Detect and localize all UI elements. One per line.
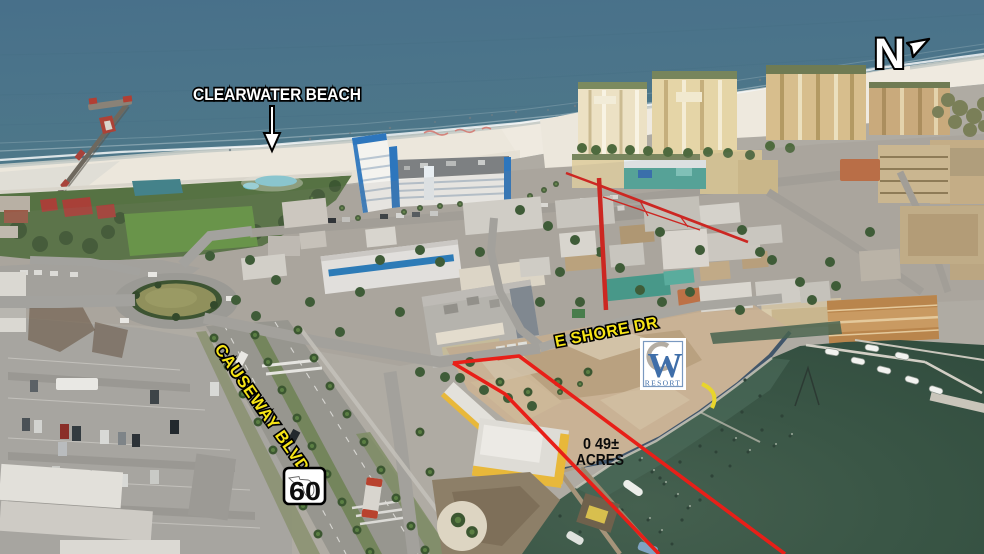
svg-text:N: N: [874, 30, 905, 78]
svg-text:60: 60: [289, 476, 321, 506]
svg-text:0 49±: 0 49±: [583, 436, 619, 453]
svg-text:RESORT: RESORT: [645, 379, 681, 388]
svg-text:ACRES: ACRES: [576, 452, 624, 469]
svg-text:CLEARWATER BEACH: CLEARWATER BEACH: [193, 85, 361, 104]
